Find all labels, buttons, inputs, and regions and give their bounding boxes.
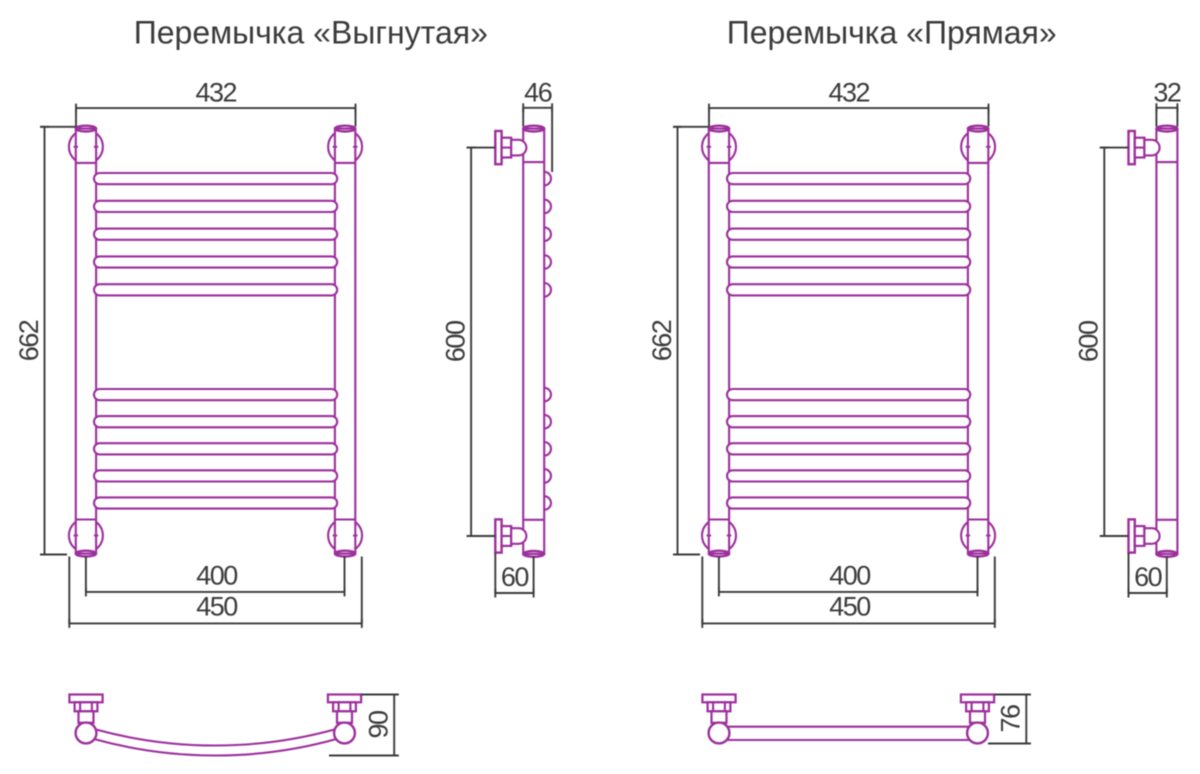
svg-text:90: 90	[364, 711, 394, 739]
svg-text:Перемычка «Прямая»: Перемычка «Прямая»	[727, 14, 1057, 50]
svg-text:400: 400	[196, 561, 237, 591]
svg-text:60: 60	[501, 562, 529, 592]
svg-text:600: 600	[1074, 321, 1104, 362]
svg-text:76: 76	[996, 705, 1026, 733]
svg-text:662: 662	[14, 320, 44, 361]
svg-text:60: 60	[1134, 562, 1162, 592]
svg-text:450: 450	[829, 591, 870, 621]
svg-text:46: 46	[524, 78, 552, 108]
svg-text:32: 32	[1153, 78, 1181, 108]
svg-text:662: 662	[647, 320, 677, 361]
svg-text:600: 600	[440, 321, 470, 362]
svg-text:Перемычка «Выгнутая»: Перемычка «Выгнутая»	[134, 14, 488, 50]
svg-text:432: 432	[829, 78, 870, 108]
svg-text:400: 400	[829, 561, 870, 591]
svg-text:450: 450	[196, 591, 237, 621]
svg-text:432: 432	[196, 78, 237, 108]
